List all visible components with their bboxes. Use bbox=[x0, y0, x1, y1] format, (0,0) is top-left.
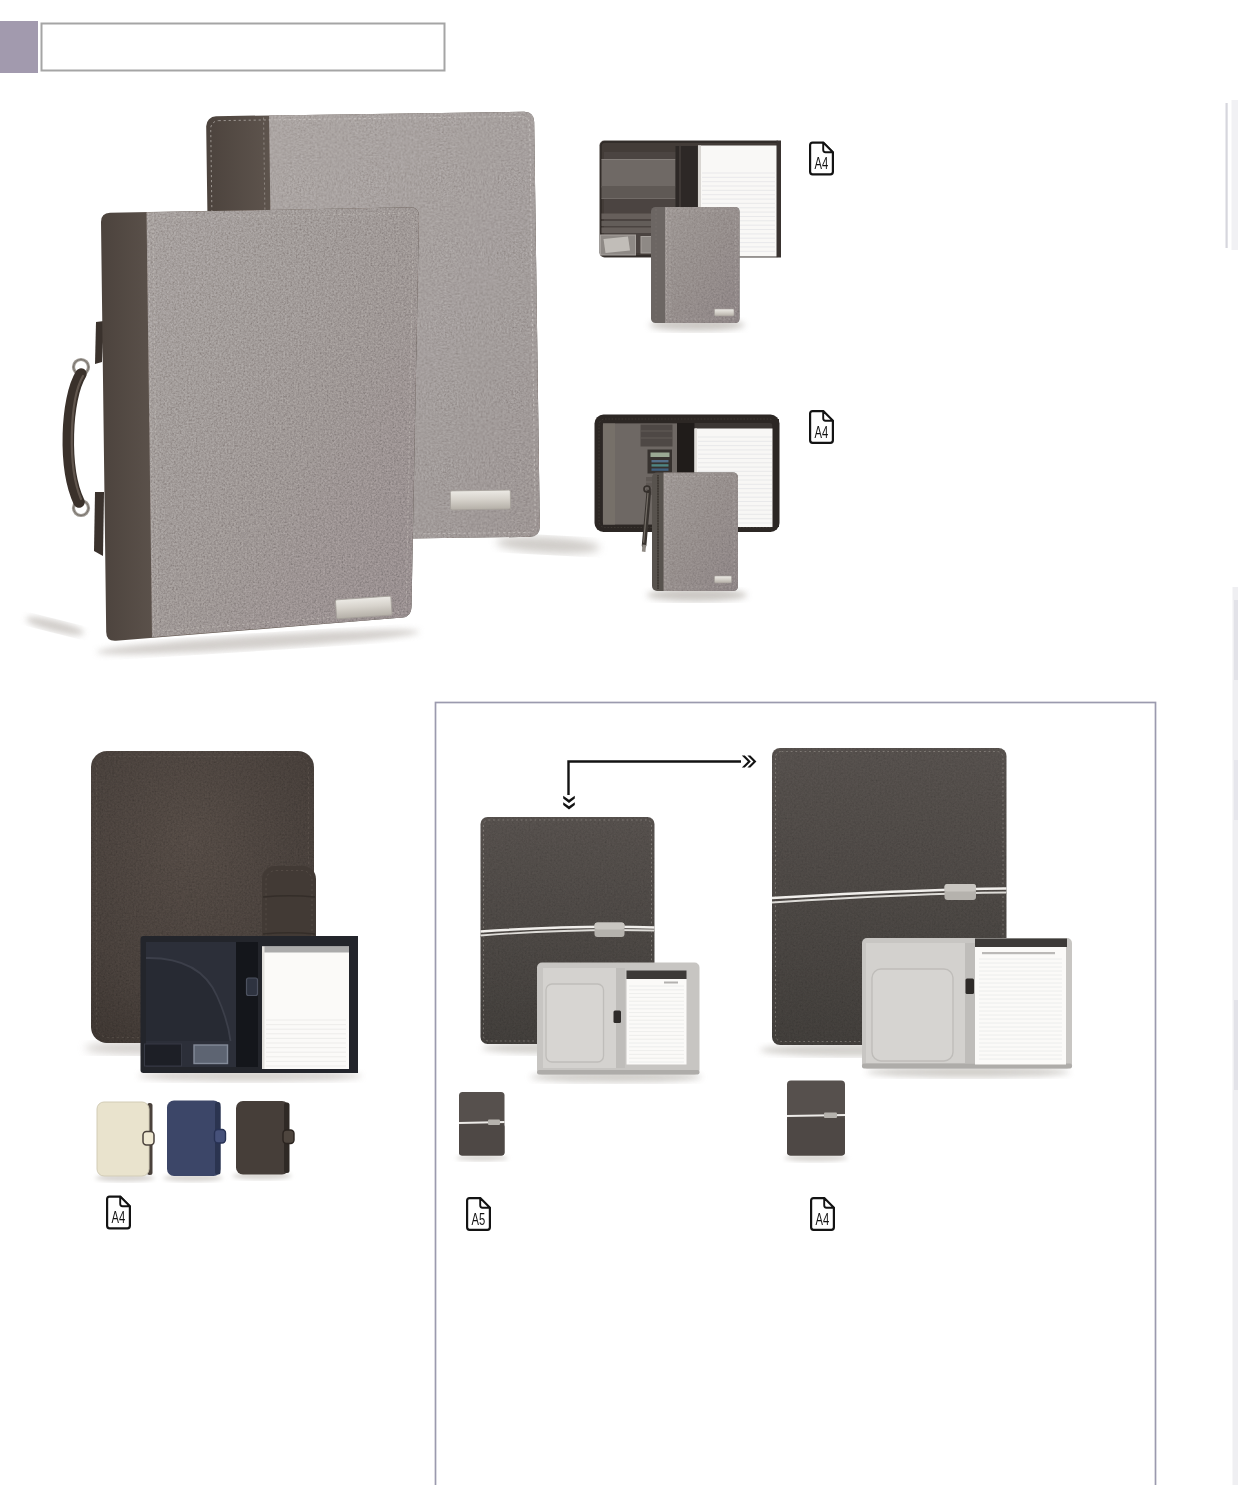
svg-text:A4: A4 bbox=[112, 1208, 126, 1227]
svg-text:A5: A5 bbox=[472, 1209, 486, 1228]
svg-text:A4: A4 bbox=[815, 422, 829, 441]
svg-text:A4: A4 bbox=[815, 154, 829, 173]
svg-text:A4: A4 bbox=[816, 1209, 830, 1228]
